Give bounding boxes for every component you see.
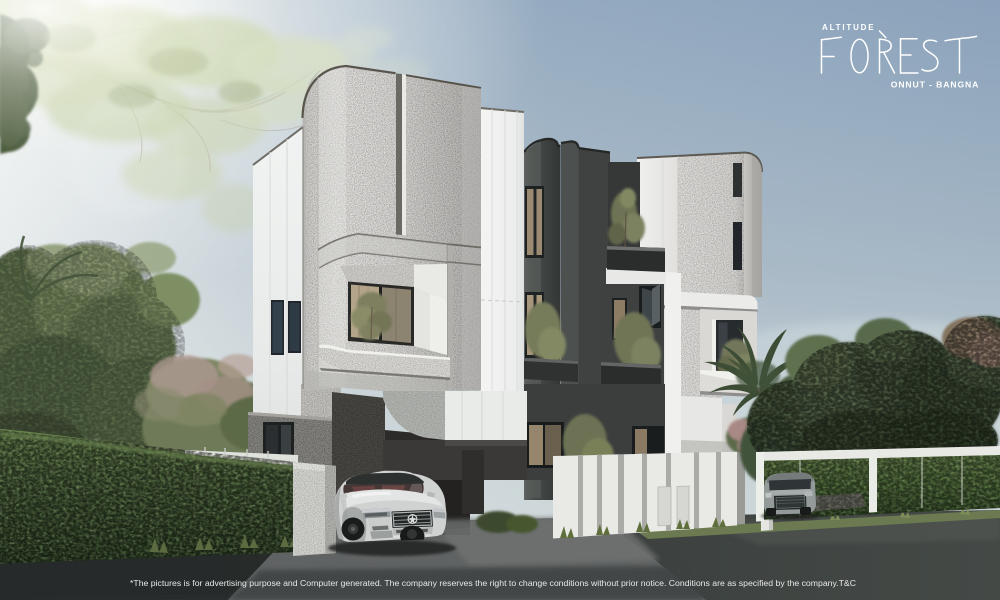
svg-text:*The pictures is for advertisi: *The pictures is for advertising purpose… bbox=[130, 578, 856, 588]
svg-text:ONNUT - BANGNA: ONNUT - BANGNA bbox=[891, 80, 980, 90]
svg-text:ALTITUDE: ALTITUDE bbox=[822, 23, 875, 32]
